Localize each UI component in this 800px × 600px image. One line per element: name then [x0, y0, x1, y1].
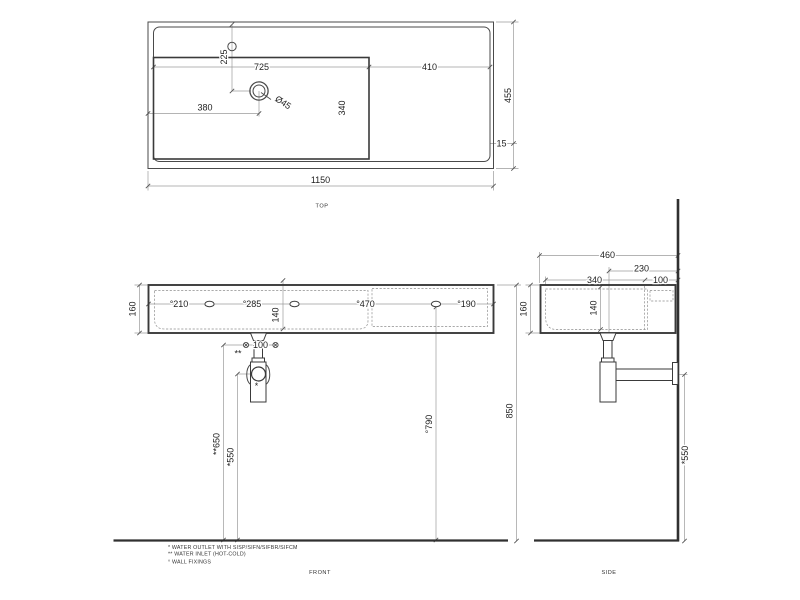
- side-dim-100-label: 100: [653, 275, 668, 285]
- top-outer-outline: [148, 22, 494, 169]
- top-drain-diameter-label: Ø45: [273, 94, 293, 112]
- front-view-label: FRONT: [309, 570, 331, 576]
- front-dim-470-label: °470: [356, 299, 375, 309]
- front-view: °210 °285 °470 °190 160 140 100 ** * **6…: [114, 278, 522, 576]
- side-dim-140-label: 140: [589, 300, 599, 315]
- top-dim-410-label: 410: [422, 62, 437, 72]
- front-inlet-marker: **: [234, 349, 242, 359]
- front-dim-550-label: *550: [226, 448, 236, 467]
- note-water-inlet: ** WATER INLET (HOT-COLD): [168, 552, 246, 558]
- side-dim-460-label: 460: [600, 250, 615, 260]
- front-fixing-hole-1: [205, 301, 214, 307]
- top-dim-1150-label: 1150: [311, 175, 330, 185]
- side-body-outline: [541, 285, 676, 333]
- side-dim-340-label: 340: [587, 275, 602, 285]
- side-dim-550-label: *550: [680, 446, 690, 465]
- front-dim-140-label: 140: [271, 307, 281, 322]
- top-view: 725 410 380 225 340 455 15 1150 Ø45 TOP: [146, 20, 519, 210]
- front-dim-790-label: °790: [424, 415, 434, 434]
- front-dim-100-label: 100: [253, 340, 268, 350]
- top-dim-15-label: 15: [497, 139, 507, 149]
- front-trap-collar: [252, 358, 265, 362]
- inlet-cross-icon: [274, 343, 278, 347]
- front-water-inlet-right: [273, 342, 278, 347]
- side-waste-pipe: [616, 369, 673, 381]
- side-trap-body: [600, 362, 616, 402]
- front-dim-160-label: 160: [128, 301, 138, 316]
- note-water-outlet: * WATER OUTLET WITH SISP/SIFN/SIFBR/SIFC…: [168, 545, 298, 551]
- front-fixing-hole-2: [290, 301, 299, 307]
- side-drain-flange: [600, 333, 616, 341]
- top-dim-225-label: 225: [219, 49, 229, 64]
- top-dim-725-label: 725: [254, 62, 269, 72]
- front-dim-190-label: °190: [457, 299, 476, 309]
- front-dim-210-label: °210: [170, 299, 189, 309]
- front-basin-hidden-edge: [155, 291, 369, 330]
- front-water-inlet-left: [243, 342, 248, 347]
- inlet-cross-icon: [244, 343, 248, 347]
- washbasin-drawing: 725 410 380 225 340 455 15 1150 Ø45 TOP: [0, 0, 800, 600]
- top-view-label: TOP: [316, 204, 329, 210]
- technical-drawing-sheet: 725 410 380 225 340 455 15 1150 Ø45 TOP: [0, 0, 800, 600]
- front-dim-650-label: **650: [212, 433, 222, 455]
- side-view: 460 230 340 100 140 160 *550 SIDE: [519, 199, 691, 576]
- front-body-outline: [149, 285, 494, 333]
- front-outlet-marker: *: [255, 381, 259, 391]
- footnotes: * WATER OUTLET WITH SISP/SIFN/SIFBR/SIFC…: [168, 545, 298, 566]
- side-overflow-hidden-edge: [650, 291, 673, 302]
- side-view-label: SIDE: [601, 570, 616, 576]
- side-wall-flange: [673, 363, 679, 385]
- top-dim-380-label: 380: [197, 103, 212, 113]
- front-trap-outlet: [252, 367, 266, 381]
- side-dim-230-label: 230: [634, 264, 649, 274]
- top-inner-rim: [154, 27, 491, 162]
- note-wall-fixings: ° WALL FIXINGS: [168, 560, 211, 566]
- front-dim-285-label: °285: [243, 299, 262, 309]
- side-tailpipe: [604, 341, 613, 359]
- front-dim-ticks: [137, 278, 518, 543]
- side-dim-160-label: 160: [519, 301, 529, 316]
- top-dim-455-label: 455: [503, 88, 513, 103]
- side-trap-collar: [602, 358, 615, 362]
- front-dim-850-label: 850: [505, 403, 515, 418]
- front-fixing-hole-3: [431, 301, 440, 307]
- top-dim-340-label: 340: [337, 100, 347, 115]
